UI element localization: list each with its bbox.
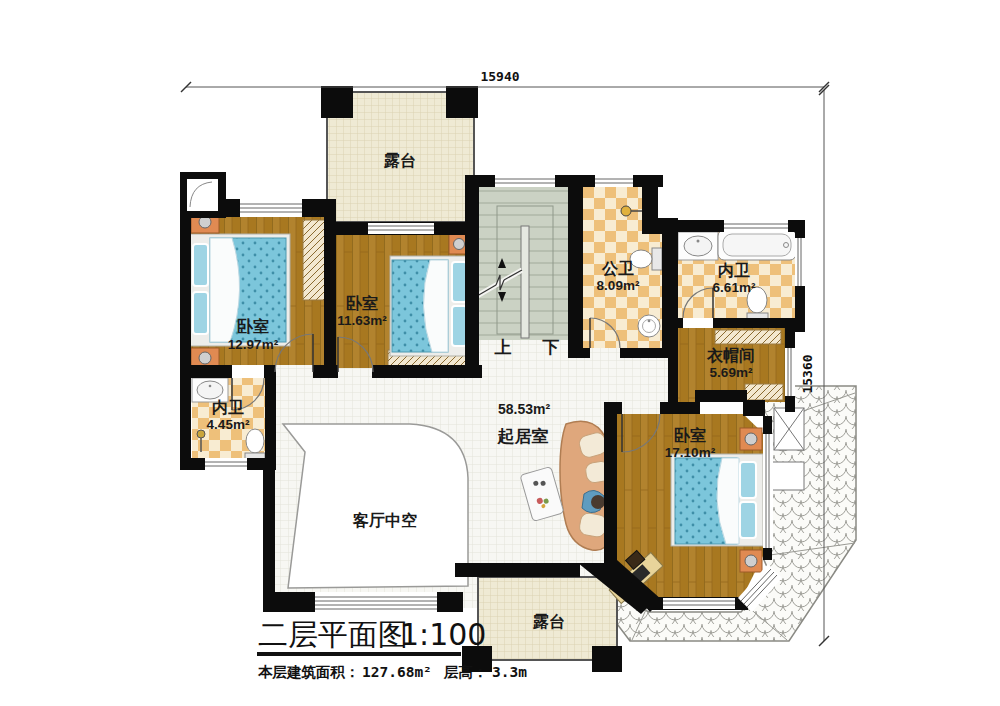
roof-skylight <box>770 408 804 490</box>
dimension-right-value: 15360 <box>800 354 815 393</box>
person-head <box>591 495 605 509</box>
label-bedroom-left-area: 12.97m² <box>228 337 279 352</box>
label-bedroom-left: 卧室 <box>237 317 269 335</box>
label-bedroom-right-area: 17.10m² <box>665 445 716 460</box>
toilet <box>630 248 662 270</box>
label-bath-left: 内卫 <box>212 399 244 416</box>
nightstand <box>740 550 762 572</box>
stair-rail <box>521 226 529 338</box>
label-bath-left-area: 4.45m² <box>207 417 250 432</box>
bed-right <box>671 454 763 546</box>
label-bath-right-area: 6.61m² <box>713 280 756 295</box>
shower-head <box>621 206 631 216</box>
toilet <box>245 429 265 461</box>
label-terrace-bottom: 露台 <box>532 613 565 630</box>
bathtub <box>718 230 796 260</box>
label-living-area: 58.53m² <box>498 401 550 417</box>
wardrobe <box>303 220 325 300</box>
label-terrace-top: 露台 <box>383 152 416 169</box>
plan-scale: 1:100 <box>400 617 486 652</box>
pillar <box>446 86 478 118</box>
dimension-top-value: 15940 <box>480 69 519 84</box>
floor-area-label: 本层建筑面积： <box>257 664 360 680</box>
pillar <box>321 86 353 118</box>
wardrobe <box>715 330 781 344</box>
floor-plan-drawing: 15940 15360 露台 卧室 12.97m² 卧室 11.63m² 公卫 … <box>0 0 1000 706</box>
pillar <box>592 646 622 672</box>
floor-height-label: 层高： <box>443 664 488 680</box>
label-bedroom-mid: 卧室 <box>346 294 378 312</box>
sink <box>638 315 660 337</box>
nightstand <box>740 428 762 450</box>
floor-height-value: 3.3m <box>492 664 527 680</box>
title-underline <box>257 652 461 656</box>
label-closet-area: 5.69m² <box>710 365 753 380</box>
label-closet: 衣帽间 <box>706 347 755 364</box>
label-stair-down: 下 <box>542 338 560 357</box>
bed-mid <box>390 256 472 356</box>
sofa <box>560 421 611 550</box>
label-bedroom-right: 卧室 <box>674 426 706 444</box>
label-bath-public: 公卫 <box>601 260 634 277</box>
label-living: 起居室 <box>497 427 549 446</box>
label-stair-up: 上 <box>494 338 512 357</box>
plan-title: 二层平面图 <box>258 618 408 651</box>
label-void: 客厅中空 <box>352 511 417 529</box>
label-bath-public-area: 8.09m² <box>597 278 640 293</box>
floor-plan-page: 15940 15360 露台 卧室 12.97m² 卧室 11.63m² 公卫 … <box>0 0 1000 706</box>
dimension-top: 15940 <box>181 69 829 92</box>
floor-area-value: 127.68m² <box>362 664 432 680</box>
wardrobe <box>745 384 783 400</box>
label-bedroom-mid-area: 11.63m² <box>337 313 387 328</box>
sink <box>678 232 718 260</box>
label-bath-right: 内卫 <box>718 262 750 279</box>
corner-box <box>187 179 218 211</box>
void-outline <box>283 424 468 588</box>
stairwell <box>477 187 568 340</box>
